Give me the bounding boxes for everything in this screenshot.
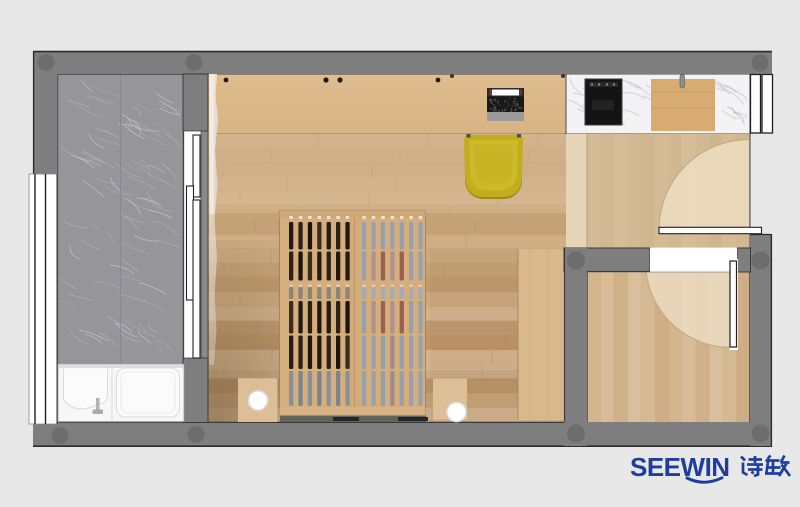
svg-text:SEEWIN: SEEWIN bbox=[630, 452, 730, 482]
